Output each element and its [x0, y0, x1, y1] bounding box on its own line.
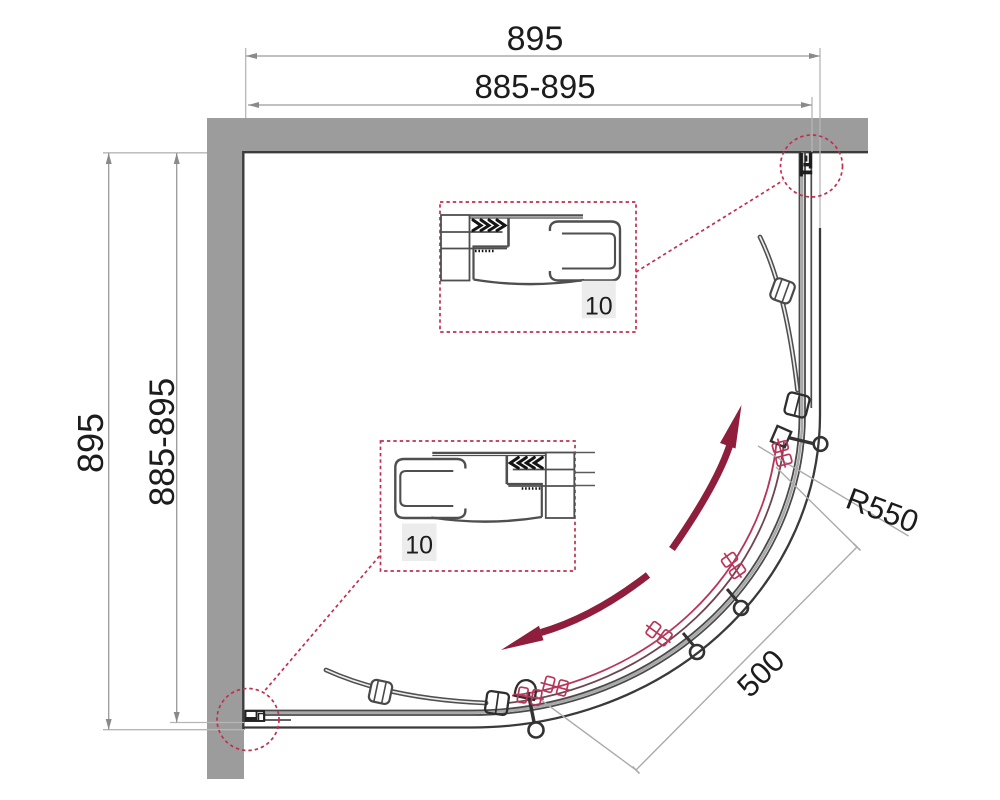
svg-text:500: 500 — [730, 643, 791, 704]
svg-text:895: 895 — [507, 20, 564, 58]
svg-text:885-895: 885-895 — [474, 68, 595, 105]
svg-text:10: 10 — [585, 293, 613, 321]
svg-text:895: 895 — [70, 413, 111, 473]
svg-text:885-895: 885-895 — [143, 378, 182, 506]
svg-text:R550: R550 — [842, 481, 924, 540]
svg-text:10: 10 — [405, 532, 433, 560]
